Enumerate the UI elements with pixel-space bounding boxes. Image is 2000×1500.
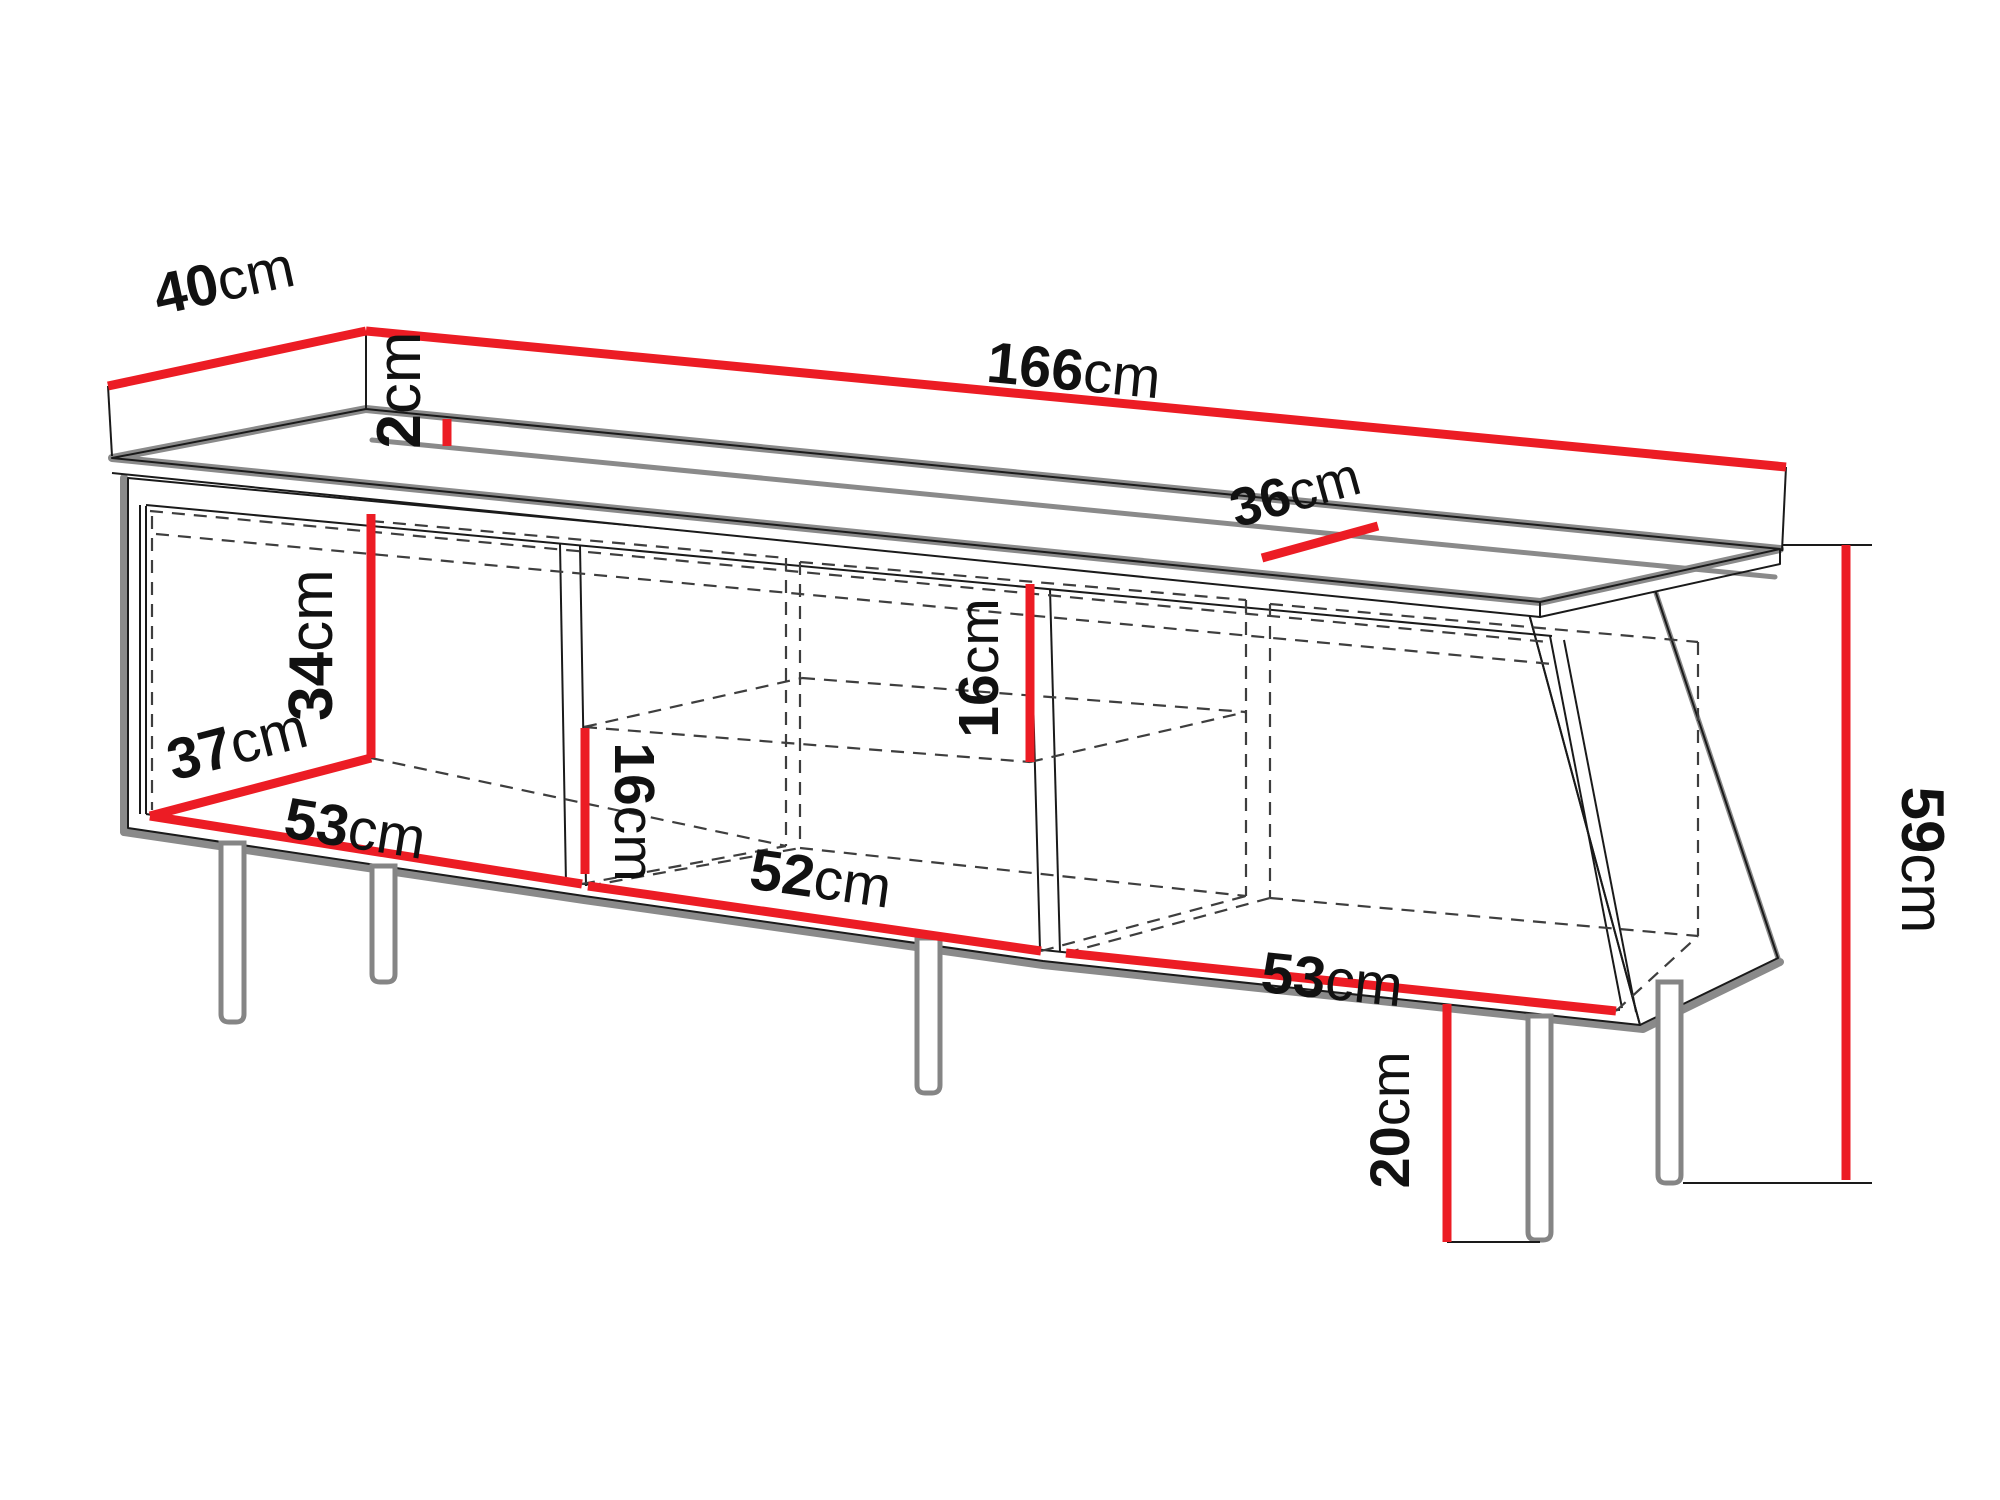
furniture-dimension-drawing: 40cm 166cm 2cm 36cm 34cm 37cm 53cm 16cm … [0,0,2000,1500]
label-total-width: 166cm [984,330,1164,411]
leg-back-right [1658,982,1681,1183]
label-middle-upper-height: 16cm [947,598,1011,737]
label-depth-top: 40cm [148,234,300,328]
leg-front-right [1528,1016,1551,1240]
leg-front-left [221,843,244,1022]
leg-back-left [372,866,395,982]
leg-middle [917,938,940,1093]
label-top-thickness: 2cm [365,331,434,448]
label-total-height: 59cm [1889,787,1956,934]
label-leg-height: 20cm [1358,1052,1421,1189]
label-right-inner-width: 53cm [1258,940,1406,1019]
dimension-diagram-page: 40cm 166cm 2cm 36cm 34cm 37cm 53cm 16cm … [0,0,2000,1500]
label-middle-lower-height: 16cm [602,742,666,881]
dim-line-depth-top [108,331,366,386]
